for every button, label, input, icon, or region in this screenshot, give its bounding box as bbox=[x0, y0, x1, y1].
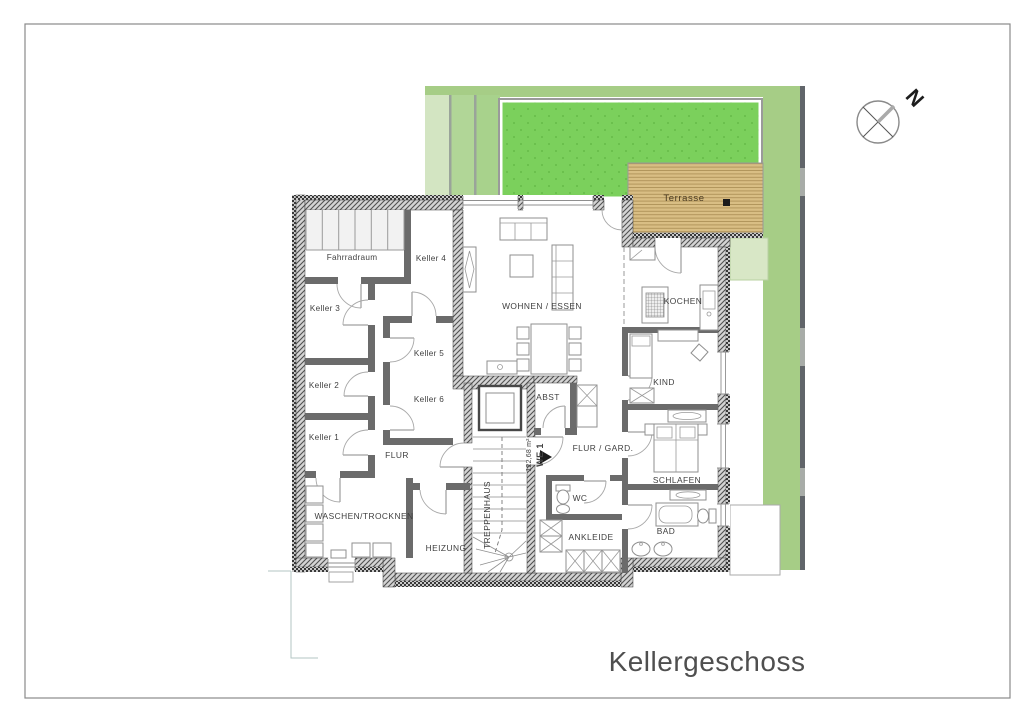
kitchen-cabinet bbox=[630, 247, 655, 260]
terrace-post bbox=[723, 199, 730, 206]
room-label-kind: KIND bbox=[653, 377, 675, 387]
room-label-keller3: Keller 3 bbox=[310, 304, 340, 313]
elevator-car bbox=[486, 393, 514, 423]
window-kind-east bbox=[716, 352, 730, 394]
room-label-keller5: Keller 5 bbox=[414, 349, 444, 358]
terrace: Terrasse bbox=[628, 163, 763, 233]
gravel-court bbox=[730, 505, 780, 575]
wall-living-west bbox=[453, 210, 463, 376]
room-label-flur-gard: FLUR / GARD. bbox=[573, 443, 634, 453]
terrace-label: Terrasse bbox=[663, 193, 704, 204]
hall-wardrobes bbox=[577, 385, 597, 427]
bathtub bbox=[656, 503, 698, 526]
room-label-keller2: Keller 2 bbox=[309, 381, 339, 390]
window-bad-east bbox=[716, 504, 730, 526]
apartment-area-label: 122,68 m² bbox=[526, 438, 533, 472]
nightstand-left bbox=[645, 424, 654, 435]
window-schlafen-east bbox=[716, 424, 730, 468]
kitchen-counter bbox=[700, 285, 718, 330]
desk bbox=[658, 330, 698, 341]
garden-right-strip bbox=[763, 86, 803, 570]
room-label-wc: WC bbox=[573, 493, 588, 503]
room-label-treppenhaus: TREPPENHAUS bbox=[482, 481, 492, 549]
stove bbox=[646, 293, 664, 317]
room-label-fahrradraum: Fahrradraum bbox=[327, 253, 378, 262]
wardrobe-x-1 bbox=[577, 385, 597, 406]
fahrradraum-bike-racks bbox=[306, 210, 404, 250]
lightwell bbox=[329, 572, 353, 582]
dining-set bbox=[517, 324, 581, 374]
coffee-table bbox=[510, 255, 533, 277]
window-living-north-2 bbox=[523, 195, 593, 210]
double-bed bbox=[654, 424, 698, 472]
room-label-keller1: Keller 1 bbox=[309, 433, 339, 442]
dresser bbox=[668, 410, 706, 422]
wardrobe-2 bbox=[577, 406, 597, 427]
room-label-keller6: Keller 6 bbox=[414, 395, 444, 404]
page-title: Kellergeschoss bbox=[609, 646, 806, 677]
radiator bbox=[463, 247, 476, 292]
room-label-keller4: Keller 4 bbox=[416, 254, 446, 263]
room-label-wohnen: WOHNEN / ESSEN bbox=[502, 301, 582, 311]
nightstand-right bbox=[698, 424, 707, 435]
toilet-wc bbox=[556, 485, 570, 504]
wc-fixtures bbox=[556, 485, 570, 514]
kind-bed bbox=[630, 334, 652, 378]
toilet-bad bbox=[698, 509, 717, 523]
apartment-unit-label: WE 1 bbox=[535, 443, 545, 467]
boundary-wall bbox=[800, 86, 805, 570]
sink-counter bbox=[670, 490, 706, 500]
room-label-bad: BAD bbox=[657, 526, 676, 536]
window-living-north-1 bbox=[463, 195, 518, 210]
garden-planting-strips bbox=[425, 95, 500, 197]
room-label-waschen: WASCHEN/TROCKNEN bbox=[314, 511, 413, 521]
room-label-abst: ABST bbox=[536, 392, 560, 402]
room-label-heizung: HEIZUNG bbox=[426, 543, 467, 553]
window-waschen-south bbox=[328, 558, 355, 582]
room-label-kochen: KOCHEN bbox=[664, 296, 703, 306]
sideboard bbox=[487, 361, 517, 374]
laundry-sink bbox=[331, 550, 346, 558]
wardrobe-x-kind bbox=[630, 388, 654, 403]
wc-sink bbox=[557, 505, 570, 514]
garden-pale-patch bbox=[730, 238, 768, 280]
sofa bbox=[500, 218, 547, 240]
room-label-ankleide: ANKLEIDE bbox=[568, 532, 613, 542]
room-label-flur: FLUR bbox=[385, 450, 409, 460]
floor-plan: Terrasse bbox=[0, 0, 1024, 724]
room-label-schlafen: SCHLAFEN bbox=[653, 475, 701, 485]
